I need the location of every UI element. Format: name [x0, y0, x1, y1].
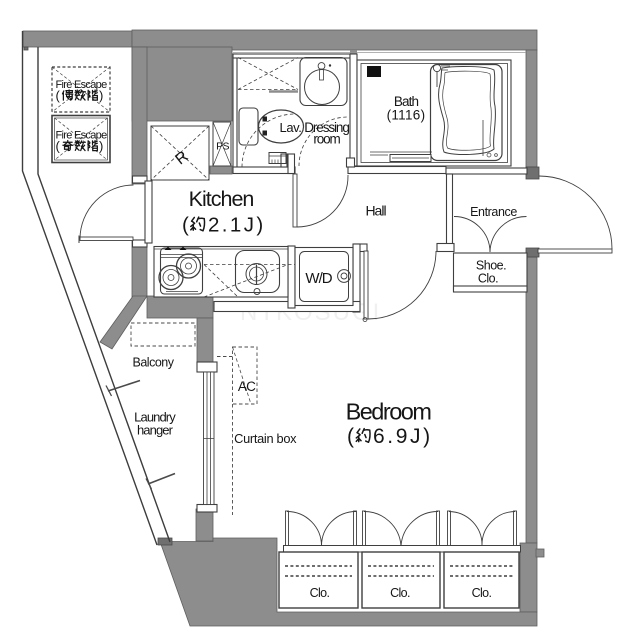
svg-text:PS: PS: [216, 141, 229, 153]
svg-text:): ): [99, 139, 103, 154]
svg-text:(: (: [56, 139, 61, 154]
svg-text:Clo.: Clo.: [390, 586, 410, 600]
svg-text:Clo.: Clo.: [472, 586, 492, 600]
svg-text:room: room: [313, 132, 340, 147]
svg-text:Kitchen: Kitchen: [189, 187, 254, 211]
svg-text:AC: AC: [238, 379, 256, 394]
svg-text:(: (: [56, 88, 61, 103]
svg-text:hanger: hanger: [137, 423, 174, 438]
svg-text:Shoe.: Shoe.: [476, 259, 506, 273]
svg-text:2.1J): 2.1J): [208, 214, 266, 237]
svg-text:Entrance: Entrance: [470, 205, 517, 219]
svg-text:(1116): (1116): [387, 108, 426, 123]
svg-text:Clo.: Clo.: [310, 586, 330, 600]
svg-text:(: (: [347, 425, 354, 448]
svg-text:Curtain box: Curtain box: [234, 431, 297, 446]
svg-text:): ): [99, 88, 103, 103]
svg-text:Balcony: Balcony: [133, 356, 175, 370]
svg-text:6.9J): 6.9J): [373, 425, 433, 448]
svg-text:Clo.: Clo.: [478, 272, 498, 286]
svg-text:W/D: W/D: [305, 270, 332, 287]
svg-text:Lav.: Lav.: [279, 120, 301, 135]
svg-text:(: (: [182, 214, 189, 237]
svg-text:Bedroom: Bedroom: [346, 399, 432, 425]
svg-text:Hall: Hall: [365, 203, 386, 219]
